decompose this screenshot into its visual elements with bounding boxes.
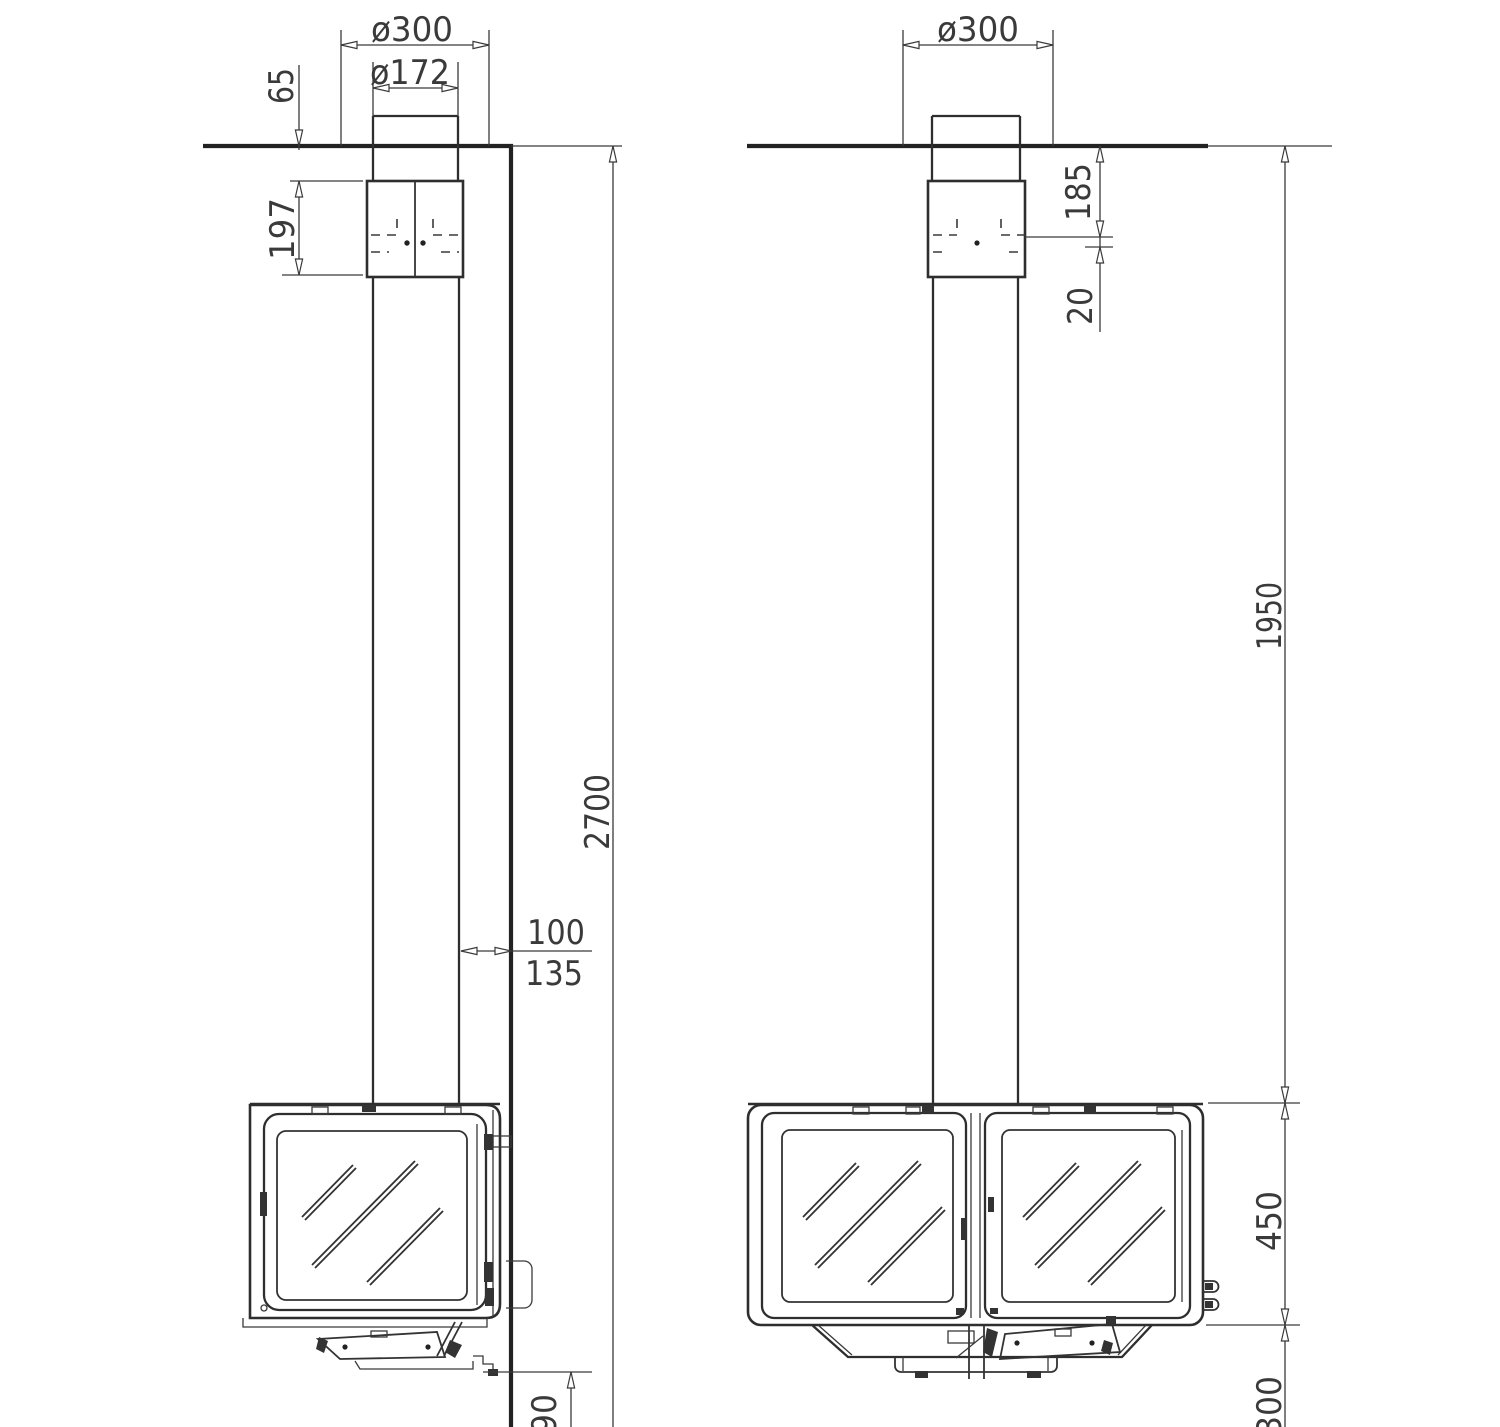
wall-hook xyxy=(493,1136,511,1147)
hinge xyxy=(988,1197,994,1212)
dimensions-left: ø300 ø172 65 197 2700 100 135 90 xyxy=(262,10,622,1427)
connector-box xyxy=(928,181,1025,277)
arrow-right xyxy=(473,41,489,48)
arrow-down xyxy=(295,130,302,146)
base-shelf xyxy=(243,1318,487,1327)
dim-pipe-wall-gap: 100 xyxy=(527,913,585,953)
hinge xyxy=(990,1308,998,1314)
foot xyxy=(915,1371,928,1378)
mech-hinge xyxy=(983,1328,998,1357)
dim-body-wall-gap: 135 xyxy=(525,954,583,994)
dim-flue-pipe: ø172 xyxy=(370,53,450,93)
dim-connector-height: 197 xyxy=(263,198,303,260)
flue-collar xyxy=(373,116,458,181)
arrow-left xyxy=(461,947,477,954)
support-hinge xyxy=(445,1340,462,1358)
arrow-down xyxy=(295,259,302,275)
latch xyxy=(485,1288,494,1306)
stove-body xyxy=(748,1105,1203,1325)
hinge xyxy=(961,1218,967,1240)
connector-bolt xyxy=(420,240,425,245)
top-clamp xyxy=(1084,1105,1096,1113)
mech-clip xyxy=(1055,1329,1071,1336)
hinge-pin xyxy=(261,1305,267,1311)
hinge xyxy=(956,1308,964,1315)
dimensions-right: ø300 185 20 1950 450 300 xyxy=(903,10,1332,1427)
dim-body-height: 450 xyxy=(1250,1191,1290,1251)
arrow-up xyxy=(1281,1325,1288,1341)
mech-bolt xyxy=(1089,1340,1094,1345)
latch-tip xyxy=(1205,1301,1213,1308)
drawing-canvas: ø300 ø172 65 197 2700 100 135 90 xyxy=(0,0,1500,1427)
dim-ceiling-to-body: 1950 xyxy=(1250,582,1290,650)
dim-below-body: 300 xyxy=(1250,1376,1290,1427)
stove-body xyxy=(250,1105,500,1318)
latch-tip xyxy=(1205,1283,1213,1290)
dim-collar-above-ceiling: 65 xyxy=(262,68,302,104)
latch xyxy=(484,1262,493,1282)
connector-bolt xyxy=(404,240,409,245)
installation-drawing: ø300 ø172 65 197 2700 100 135 90 xyxy=(0,0,1500,1427)
arrow-up xyxy=(1096,247,1103,263)
dim-flue-hole: ø300 xyxy=(371,10,453,50)
hanger-bracket xyxy=(484,1134,493,1150)
connector-bolt xyxy=(974,240,979,245)
top-clamp xyxy=(362,1105,376,1112)
hinge xyxy=(260,1192,267,1216)
flue-collar xyxy=(932,116,1020,181)
connector-damper-dashed xyxy=(933,219,1025,252)
base-trapezoid-inner xyxy=(818,1325,1146,1355)
arrow-left xyxy=(903,41,919,48)
dim-flue-hole: ø300 xyxy=(937,10,1019,50)
arrow-up xyxy=(609,146,616,162)
foot xyxy=(1027,1371,1041,1378)
stove-glass-left xyxy=(782,1130,953,1302)
mech-bolt xyxy=(1014,1340,1019,1345)
dim-ceiling-height: 2700 xyxy=(578,774,618,850)
glass-reflection-lines xyxy=(1023,1161,1165,1285)
arrow-down xyxy=(1281,1309,1288,1325)
dim-ceiling-to-outlet: 185 xyxy=(1059,163,1099,221)
arrow-up xyxy=(1281,146,1288,162)
top-clamp xyxy=(922,1105,934,1113)
arrow-up xyxy=(567,1372,574,1388)
dim-outlet-step: 20 xyxy=(1061,287,1101,325)
glass-reflection-lines xyxy=(302,1161,443,1285)
ash-lip xyxy=(355,1361,473,1369)
mech-hinge xyxy=(1106,1316,1116,1324)
arrow-up xyxy=(1281,1103,1288,1119)
wall-mounted-view xyxy=(203,116,532,1427)
ash-pan xyxy=(895,1357,1057,1372)
base-bolt xyxy=(425,1344,430,1349)
mech-box xyxy=(948,1331,974,1343)
arrow-down xyxy=(1096,221,1103,237)
corner-view xyxy=(747,116,1219,1379)
base-bolt xyxy=(342,1344,347,1349)
arrow-down xyxy=(1281,1087,1288,1103)
arrow-left xyxy=(341,41,357,48)
arrow-right xyxy=(1037,41,1053,48)
arrow-up xyxy=(295,181,302,197)
arrow-right xyxy=(495,947,511,954)
glass-reflection-lines xyxy=(803,1161,945,1285)
arrow-up xyxy=(1096,146,1103,162)
base-trapezoid xyxy=(812,1325,1152,1357)
dim-base-height: 90 xyxy=(525,1394,565,1427)
